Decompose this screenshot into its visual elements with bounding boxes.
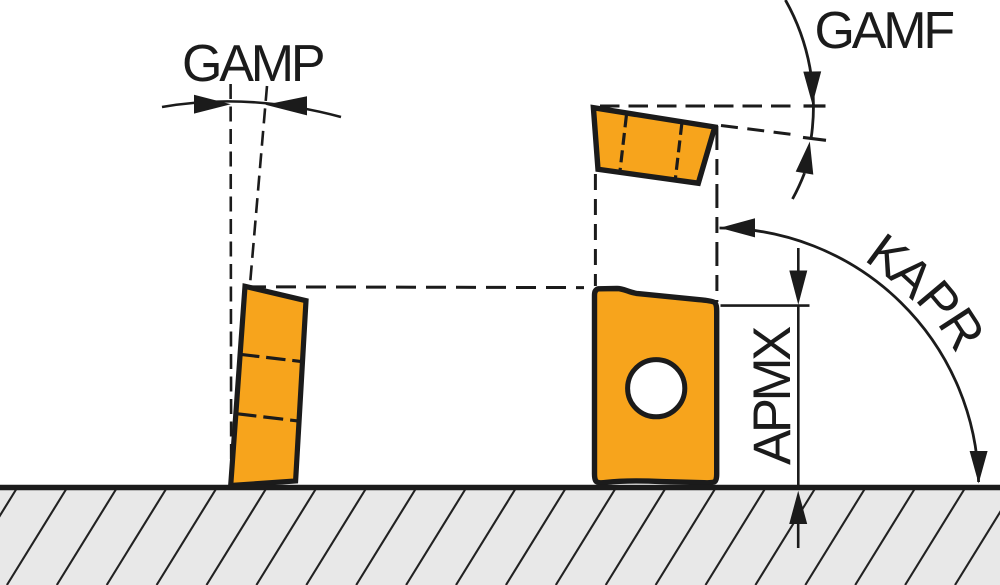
svg-text:GAMF: GAMF — [815, 2, 954, 60]
svg-text:GAMP: GAMP — [182, 35, 323, 93]
svg-text:APMX: APMX — [743, 326, 802, 465]
